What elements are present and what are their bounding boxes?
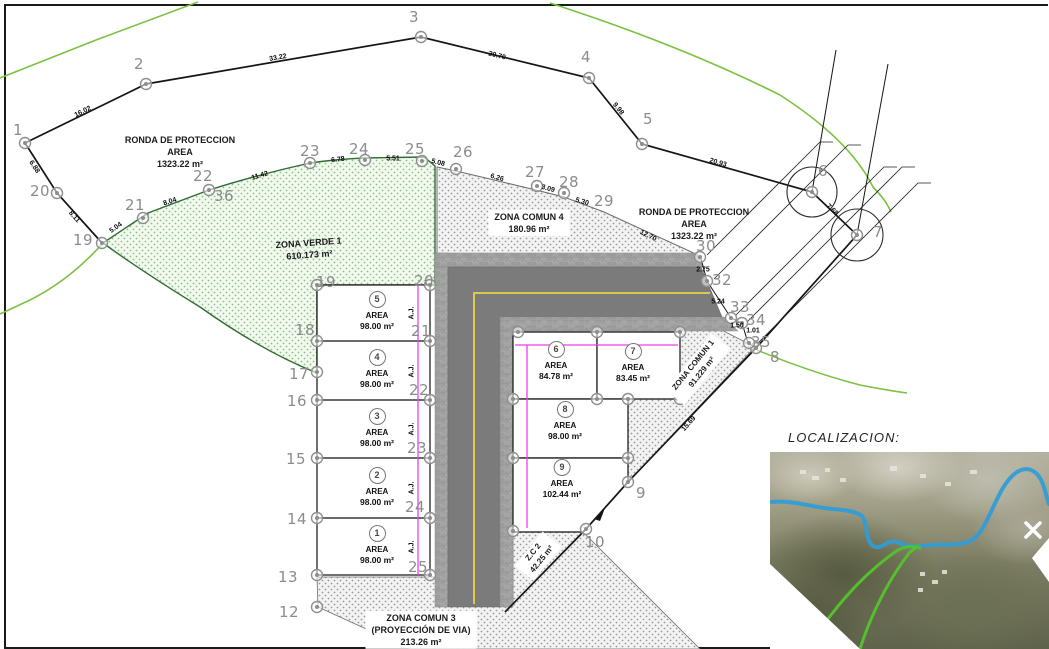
lot-area-value: 98.00 m² — [360, 497, 394, 507]
edge-length-label: 5.04 — [108, 221, 123, 235]
edge-length-label: 3.09 — [541, 184, 556, 194]
vertex-label: 29 — [594, 192, 614, 210]
edge-length-label: 33.22 — [269, 53, 287, 63]
edge-length-label: 1.50 — [730, 323, 744, 330]
edge-length-label: 8.04 — [162, 197, 177, 208]
edge-length-label: 8.11 — [67, 210, 81, 225]
aj-label: A.J. — [409, 423, 416, 436]
edge-length-label: 7.68 — [825, 203, 840, 218]
edge-length-label: 5.24 — [711, 299, 725, 306]
lot-area-word: AREA — [360, 545, 394, 554]
edge-length-label: 20.70 — [488, 50, 507, 61]
vertex-label: 35 — [751, 333, 771, 351]
lot-number: 1 — [369, 525, 386, 542]
vertex-label: 24 — [349, 140, 369, 158]
vertex-label: 12 — [279, 603, 299, 621]
edge-length-label: 9.98 — [611, 102, 625, 117]
lot-area-value: 98.00 m² — [360, 321, 394, 331]
vertex-label: 17 — [289, 365, 309, 383]
lot-area-value: 102.44 m² — [543, 489, 582, 499]
vertex-label: 16 — [287, 392, 307, 410]
edge-length-label: 6.78 — [331, 156, 345, 164]
lot-area-value: 98.00 m² — [360, 379, 394, 389]
vertex-label: 1 — [13, 121, 23, 139]
lot-label: 7AREA83.45 m² — [616, 341, 650, 383]
edge-length-label: 20.93 — [709, 157, 728, 169]
lot-area-value: 83.45 m² — [616, 373, 650, 383]
lot-label: 8AREA98.00 m² — [548, 399, 582, 441]
vertex-label: 34 — [746, 311, 766, 329]
vertex-label: 19 — [73, 231, 93, 249]
vertex-label: 27 — [525, 163, 545, 181]
lot-number: 4 — [369, 349, 386, 366]
vertex-label: 8 — [770, 348, 780, 366]
aj-label: A.J. — [409, 365, 416, 378]
lot-area-value: 98.00 m² — [360, 438, 394, 448]
vertex-label: 24 — [405, 498, 425, 516]
lot-area-word: AREA — [539, 361, 573, 370]
lot-label: 6AREA84.78 m² — [539, 339, 573, 381]
edge-length-label: 5.08 — [431, 158, 446, 168]
edge-length-label: 11.42 — [251, 170, 269, 182]
edge-length-label: 5.30 — [574, 197, 589, 208]
lot-area-word: AREA — [548, 421, 582, 430]
vertex-label: 5 — [643, 110, 653, 128]
zone-label-zona-comun-3: ZONA COMUN 3(PROYECCIÓN DE VIA)213.26 m² — [365, 611, 476, 649]
zone-label-zc-2: Z.C 242.25 m² — [515, 531, 561, 580]
vertex-label: 4 — [581, 48, 591, 66]
lot-area-word: AREA — [543, 479, 582, 488]
labels-layer: 1234567891012131415161718192021223623242… — [0, 0, 1049, 649]
vertex-label: 26 — [453, 143, 473, 161]
vertex-label: 23 — [300, 142, 320, 160]
zone-label-zona-verde-1: ZONA VERDE 1610.173 m² — [275, 235, 343, 264]
aj-label: A.J. — [409, 482, 416, 495]
lot-label: 5AREA98.00 m² — [360, 289, 394, 331]
edge-length-label: 6.88 — [27, 159, 40, 174]
lot-area-word: AREA — [360, 311, 394, 320]
vertex-label: 32 — [712, 271, 732, 289]
vertex-label: 15 — [286, 450, 306, 468]
zone-label-ronda-proteccion-left: RONDA DE PROTECCIONAREA1323.22 m² — [125, 134, 235, 170]
vertex-label: 20 — [414, 272, 434, 290]
lot-number: 7 — [625, 343, 642, 360]
lot-area-word: AREA — [360, 369, 394, 378]
vertex-label: 23 — [407, 439, 427, 457]
vertex-label: 22 — [409, 381, 429, 399]
lot-label: 4AREA98.00 m² — [360, 347, 394, 389]
lot-area-value: 98.00 m² — [548, 431, 582, 441]
edge-length-label: 16.02 — [74, 105, 93, 119]
vertex-label: 14 — [287, 510, 307, 528]
lot-label: 1AREA98.00 m² — [360, 523, 394, 565]
lot-number: 6 — [548, 341, 565, 358]
lot-area-word: AREA — [616, 363, 650, 372]
lot-label: 2AREA98.00 m² — [360, 465, 394, 507]
lot-area-word: AREA — [360, 428, 394, 437]
vertex-label: 3 — [409, 8, 419, 26]
vertex-label: 9 — [636, 484, 646, 502]
edge-length-label: 5.51 — [386, 156, 400, 163]
aj-label: A.J. — [409, 307, 416, 320]
lot-number: 3 — [369, 408, 386, 425]
lot-label: 9AREA102.44 m² — [543, 457, 582, 499]
vertex-label: 13 — [278, 568, 298, 586]
edge-length-label: 1.01 — [746, 328, 760, 335]
vertex-label: 25 — [408, 558, 428, 576]
lot-label: 3AREA98.00 m² — [360, 406, 394, 448]
zone-label-ronda-proteccion-right: RONDA DE PROTECCIONAREA1323.22 m² — [639, 206, 749, 242]
aj-label: A.J. — [409, 541, 416, 554]
edge-length-label: 6.26 — [490, 173, 505, 183]
edge-length-label: 2.75 — [696, 267, 710, 274]
lot-number: 2 — [369, 467, 386, 484]
lot-number: 8 — [557, 401, 574, 418]
vertex-label: 21 — [125, 196, 145, 214]
lot-number: 9 — [554, 459, 571, 476]
vertex-label: 7 — [873, 223, 883, 241]
zone-label-zona-comun-4: ZONA COMUN 4180.96 m² — [488, 210, 569, 236]
vertex-label: 21 — [411, 322, 431, 340]
vertex-label: 6 — [818, 162, 828, 180]
lot-area-value: 98.00 m² — [360, 555, 394, 565]
lot-area-word: AREA — [360, 487, 394, 496]
edge-length-label: 15.69 — [681, 415, 698, 433]
zone-label-zona-comun-1: ZONA COMUN 191.229 m² — [666, 333, 731, 405]
lot-area-value: 84.78 m² — [539, 371, 573, 381]
vertex-label: 20 — [30, 182, 50, 200]
vertex-label: 19 — [316, 273, 336, 291]
vertex-label: 25 — [405, 140, 425, 158]
vertex-label: 10 — [585, 533, 605, 551]
site-plan-canvas: 1234567891012131415161718192021223623242… — [0, 0, 1049, 649]
vertex-label: 18 — [295, 321, 315, 339]
vertex-label: 36 — [214, 187, 234, 205]
localizacion-title: LOCALIZACION: — [788, 430, 900, 445]
lot-number: 5 — [369, 291, 386, 308]
vertex-label: 2 — [134, 55, 144, 73]
vertex-label: 28 — [559, 173, 579, 191]
